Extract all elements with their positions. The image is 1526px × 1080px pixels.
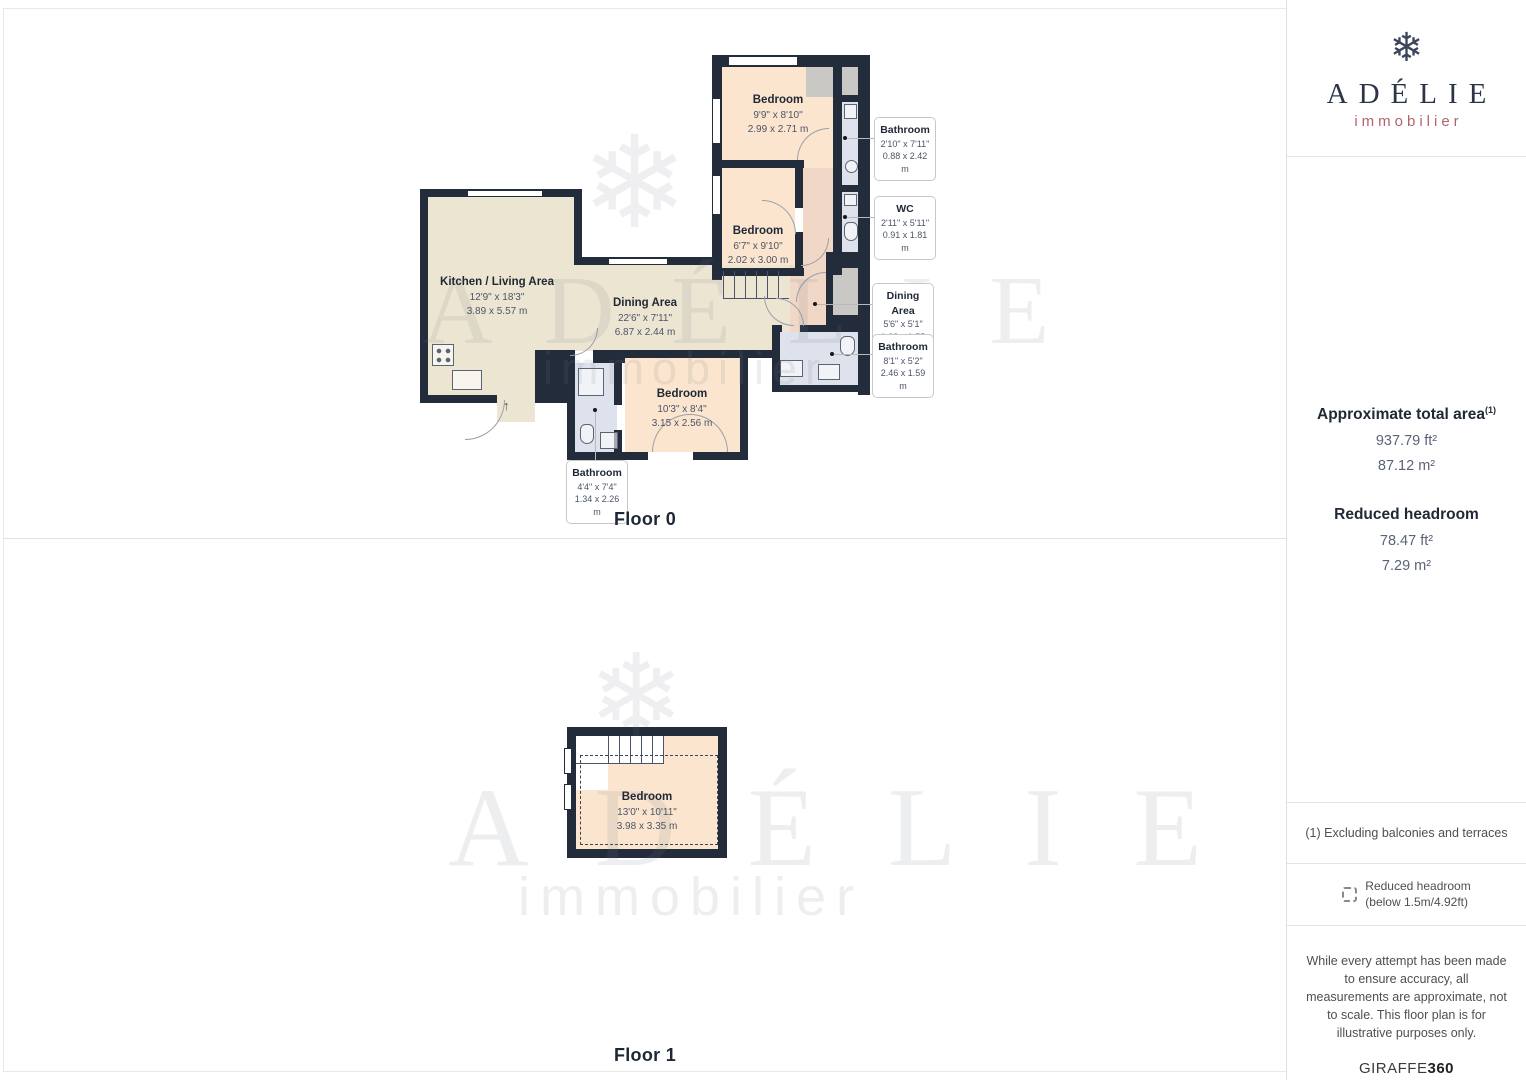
wall <box>826 252 870 268</box>
floorplan-canvas <box>3 8 1287 1072</box>
dashed-square-icon <box>1342 887 1357 902</box>
callout-leader <box>847 217 874 218</box>
room-label-kitchen: Kitchen / Living Area 12'9" x 18'3" 3.89… <box>422 274 572 320</box>
measure-dot <box>813 302 817 306</box>
area-stats: Approximate total area(1) 937.79 ft² 87.… <box>1287 157 1526 803</box>
room-label-floor1-bedroom: Bedroom 13'0" x 10'11" 3.98 x 3.35 m <box>587 789 707 835</box>
stove-icon <box>432 344 454 366</box>
wall <box>718 727 727 858</box>
brand-tagline: immobilier <box>1287 113 1526 130</box>
vendor-suffix: 360 <box>1427 1060 1454 1077</box>
shower-icon <box>578 368 604 396</box>
measure-dot <box>593 408 597 412</box>
callout-leader <box>595 412 596 460</box>
window <box>467 190 543 197</box>
brand-name: ADÉLIE <box>1287 78 1526 111</box>
kitchen-sink-icon <box>452 370 482 390</box>
wall <box>772 385 866 392</box>
wall <box>567 355 575 460</box>
wall <box>842 185 858 192</box>
window <box>608 258 668 265</box>
wall <box>800 325 866 332</box>
measure-dot <box>843 136 847 140</box>
wall <box>772 325 780 392</box>
floor0-label: Floor 0 <box>495 509 795 530</box>
wall <box>712 160 804 168</box>
callout-wc: WC 2'11" x 5'11" 0.91 x 1.81 m <box>874 196 936 260</box>
toilet-icon <box>580 424 594 444</box>
wall <box>614 355 622 405</box>
stairs-floor0 <box>723 271 789 299</box>
tub-icon <box>818 364 840 380</box>
window <box>564 784 572 810</box>
wall <box>772 325 782 332</box>
window <box>712 175 721 215</box>
callout-leader <box>817 304 872 305</box>
window <box>728 56 798 66</box>
callout-bathroom1: Bathroom 2'10" x 7'11" 0.88 x 2.42 m <box>874 117 936 181</box>
disclaimer: While every attempt has been made to ens… <box>1287 926 1526 1080</box>
closet-fill-dining <box>833 268 858 315</box>
shower-icon <box>780 360 803 377</box>
wall <box>795 168 803 208</box>
room-label-bedroom2: Bedroom 6'7" x 9'10" 2.02 x 3.00 m <box>698 223 818 269</box>
floor1-label: Floor 1 <box>495 1045 795 1066</box>
washer-icon <box>600 432 618 449</box>
legend-line1: Reduced headroom <box>1365 879 1470 893</box>
room-label-dining: Dining Area 22'6" x 7'11" 6.87 x 2.44 m <box>585 295 705 341</box>
vendor-name: GIRAFFE <box>1359 1060 1428 1077</box>
room-label-bedroom3: Bedroom 10'3" x 8'4" 3.15 x 2.56 m <box>622 386 742 432</box>
reduced-headroom-m: 7.29 m² <box>1287 558 1526 574</box>
sink-icon <box>844 104 857 119</box>
total-area-title: Approximate total area(1) <box>1287 405 1526 424</box>
window <box>564 748 572 774</box>
toilet-icon <box>840 336 855 356</box>
measure-dot <box>830 352 834 356</box>
wall <box>826 315 870 325</box>
total-area-m: 87.12 m² <box>1287 458 1526 474</box>
basin-icon <box>845 160 858 173</box>
callout-leader <box>834 354 872 355</box>
brand-logo: ❄ ADÉLIE immobilier <box>1287 0 1526 157</box>
footnote-marker: (1) <box>1485 405 1496 415</box>
wall <box>567 452 648 460</box>
sink-icon <box>844 194 857 206</box>
measure-dot <box>843 215 847 219</box>
vendor-logo: GIRAFFE360 <box>1305 1058 1508 1080</box>
callout-leader <box>847 138 874 139</box>
reduced-headroom-ft: 78.47 ft² <box>1287 533 1526 549</box>
room-label-bedroom1: Bedroom 9'9" x 8'10" 2.99 x 2.71 m <box>718 92 838 138</box>
entry-arrow-icon: ↑ <box>503 398 510 413</box>
reduced-headroom-title: Reduced headroom <box>1287 506 1526 524</box>
wall <box>842 95 858 102</box>
wall <box>567 727 727 736</box>
legend-line2: (below 1.5m/4.92ft) <box>1365 895 1468 909</box>
footnote: (1) Excluding balconies and terraces <box>1287 803 1526 865</box>
snowflake-icon: ❄ <box>1287 28 1526 68</box>
wall <box>858 55 870 395</box>
toilet-icon <box>844 222 858 241</box>
wall <box>574 189 582 265</box>
total-area-ft: 937.79 ft² <box>1287 433 1526 449</box>
callout-bathroom2: Bathroom 8'1" x 5'2" 2.46 x 1.59 m <box>872 334 934 398</box>
reduced-headroom-legend: Reduced headroom (below 1.5m/4.92ft) <box>1287 864 1526 926</box>
panel-divider <box>3 538 1287 539</box>
wall <box>826 268 833 315</box>
sidebar: ❄ ADÉLIE immobilier Approximate total ar… <box>1286 0 1526 1080</box>
wall <box>567 849 727 858</box>
